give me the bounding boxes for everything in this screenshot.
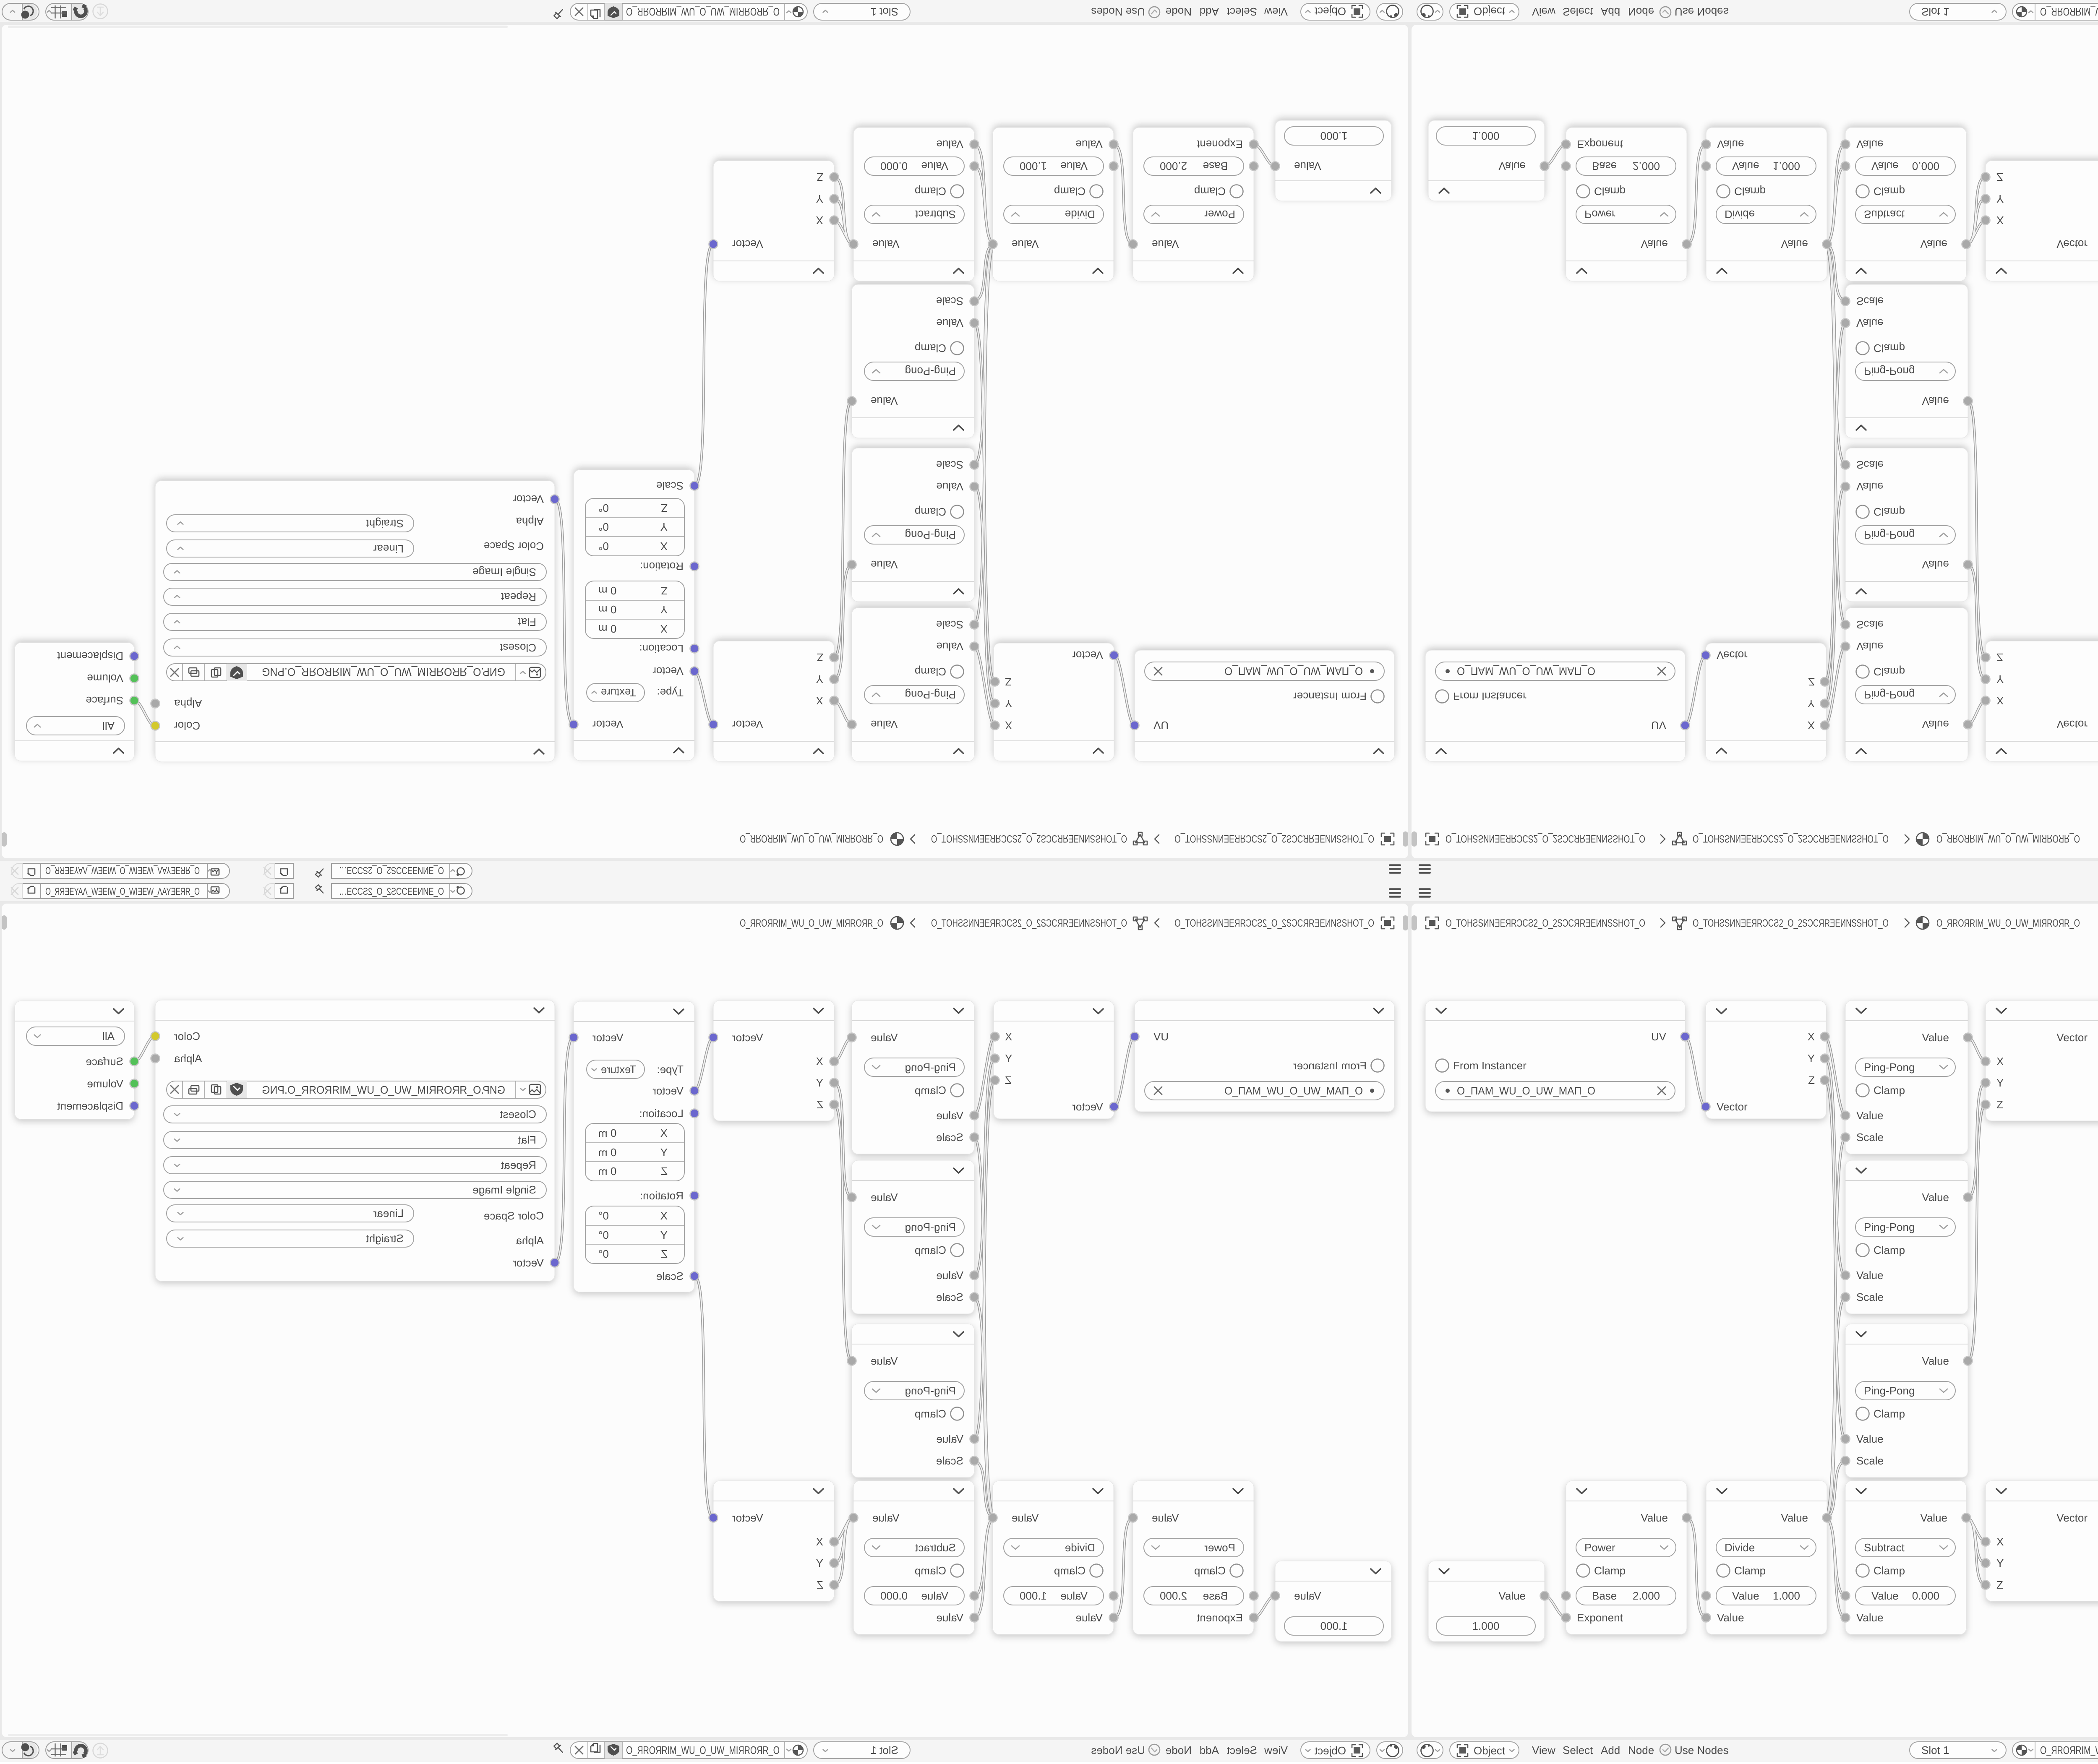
- svg-text:2.000: 2.000: [1633, 1589, 1660, 1602]
- svg-text:Object: Object: [1474, 1744, 1506, 1757]
- svg-text:1.000: 1.000: [1472, 1620, 1499, 1632]
- svg-text:O_ЯROЯRIM_WU_O_UW_MIЯROЯR_O: O_ЯROЯRIM_WU_O_UW_MIЯROЯR_O: [1936, 917, 2080, 929]
- svg-text:Clamp: Clamp: [1874, 1564, 1905, 1577]
- svg-text:Clamp: Clamp: [1734, 1564, 1766, 1577]
- svg-text:O_TOHƧSИNƎEЯRƆCƧ2_O_2ЅƆCЯRƎEИN: O_TOHƧSИNƎEЯRƆCƧ2_O_2ЅƆCЯRƎEИNЅSHOT_O: [1693, 917, 1889, 929]
- svg-text:Vector: Vector: [1717, 1100, 1748, 1113]
- svg-text:Power: Power: [1584, 1541, 1615, 1554]
- svg-text:X: X: [1808, 1030, 1815, 1043]
- svg-text:Base: Base: [1592, 1589, 1617, 1602]
- svg-text:Value: Value: [1781, 1511, 1808, 1524]
- svg-text:Value: Value: [1498, 1589, 1526, 1602]
- svg-text:O_ПAM_WU_O_UW_MAП_O: O_ПAM_WU_O_UW_MAП_O: [1457, 1084, 1595, 1097]
- svg-text:Value: Value: [1920, 1511, 1947, 1524]
- svg-text:Node: Node: [1628, 1744, 1654, 1756]
- svg-text:1.000: 1.000: [1773, 1589, 1800, 1602]
- svg-text:Value: Value: [1871, 1589, 1899, 1602]
- svg-text:O_ЯROЯRIM_WU_O_UW_MIЯROЯR_O: O_ЯROЯRIM_WU_O_UW_MIЯROЯR_O: [2040, 1744, 2098, 1756]
- svg-text:Value: Value: [1856, 1611, 1884, 1624]
- svg-text:Divide: Divide: [1725, 1541, 1755, 1554]
- svg-text:View: View: [1532, 1744, 1555, 1756]
- svg-text:Add: Add: [1601, 1744, 1620, 1756]
- svg-text:Z: Z: [1808, 1074, 1815, 1087]
- svg-text:Clamp: Clamp: [1594, 1564, 1626, 1577]
- svg-text:Value: Value: [1732, 1589, 1759, 1602]
- svg-text:UV: UV: [1651, 1030, 1667, 1043]
- svg-text:Value: Value: [1641, 1511, 1668, 1524]
- svg-text:Slot 1: Slot 1: [1921, 1744, 1949, 1756]
- svg-text:Value: Value: [1717, 1611, 1744, 1624]
- svg-text:Y: Y: [1808, 1052, 1815, 1065]
- svg-text:Select: Select: [1563, 1744, 1593, 1756]
- svg-text:0.000: 0.000: [1912, 1589, 1939, 1602]
- svg-text:Use Nodes: Use Nodes: [1675, 1744, 1729, 1756]
- svg-text:Exponent: Exponent: [1577, 1611, 1623, 1624]
- svg-text:From Instancer: From Instancer: [1453, 1059, 1527, 1072]
- svg-text:O_TOHƧSИNƎEЯRƆCƧ2_O_2ЅƆCЯRƎEИN: O_TOHƧSИNƎEЯRƆCƧ2_O_2ЅƆCЯRƎEИNЅSHOT_O: [1446, 917, 1645, 929]
- svg-text:Subtract: Subtract: [1864, 1541, 1905, 1554]
